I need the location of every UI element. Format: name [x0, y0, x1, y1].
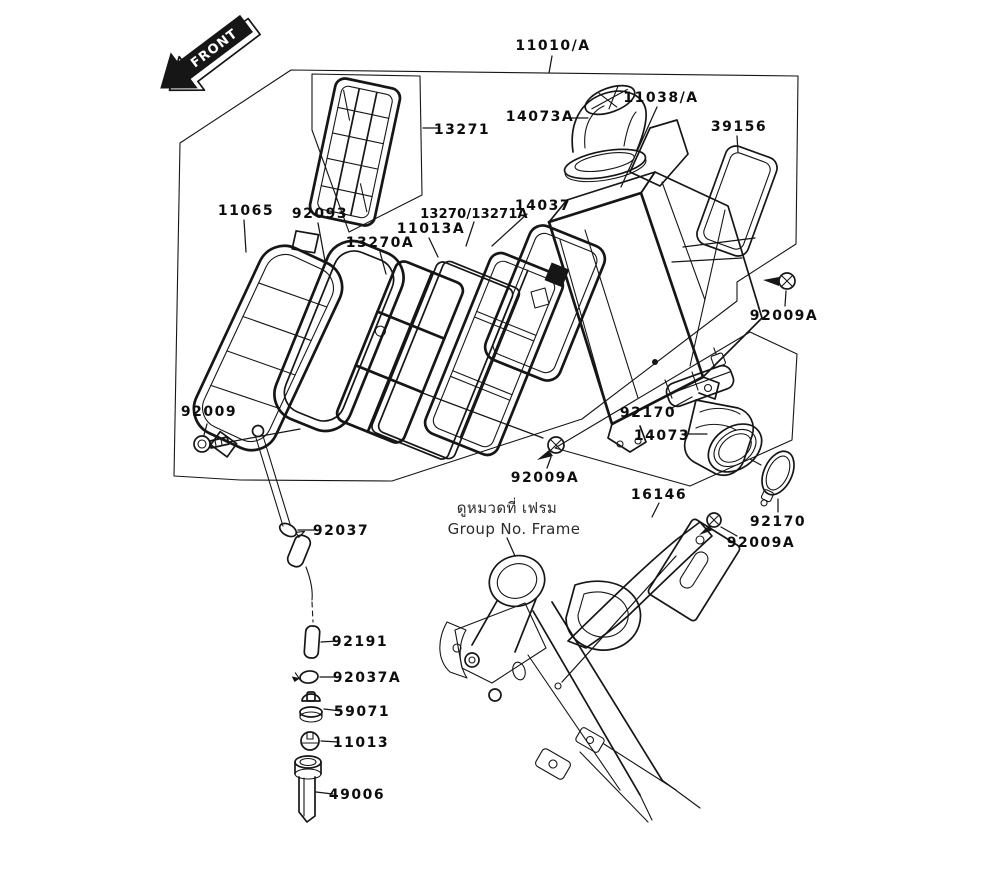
parts-diagram-page: FRONT: [0, 0, 1000, 880]
callout-92009: 92009: [181, 404, 237, 420]
callout-labels: 11010/A 13271 14073A 11038/A 39156 11065…: [181, 38, 818, 803]
frame-note-english: Group No. Frame: [448, 520, 581, 538]
callout-14073A: 14073A: [506, 109, 575, 125]
callout-14037: 14037: [515, 198, 571, 214]
callout-92009A-top: 92009A: [750, 308, 819, 324]
hose-segment: [286, 533, 313, 569]
part-49006-boot: [295, 756, 321, 822]
part-13270A-plate: [334, 259, 465, 445]
part-92009A-screw-center: [420, 392, 564, 460]
frame-reference-drawing: [440, 548, 700, 822]
drain-hose-chain: [256, 436, 322, 822]
callout-92037A: 92037A: [333, 670, 402, 686]
part-11038A-case: [531, 120, 762, 452]
part-11013-holder: [301, 732, 319, 750]
callout-11013A: 11013A: [397, 221, 466, 237]
part-13270-13271A-plate: [422, 249, 567, 458]
callout-13271: 13271: [434, 122, 490, 138]
parts-diagram-svg: FRONT: [0, 0, 1000, 880]
callout-11013: 11013: [333, 735, 389, 751]
callout-39156: 39156: [711, 119, 767, 135]
callout-92191: 92191: [332, 634, 388, 650]
callout-92093: 92093: [292, 206, 348, 222]
callout-49006: 49006: [329, 787, 385, 803]
callout-92170-upper: 92170: [620, 405, 676, 421]
cover-drain-spout: [253, 426, 264, 437]
callout-92009A-center: 92009A: [511, 470, 580, 486]
callout-13270-13271A: 13270/13271A: [420, 207, 528, 222]
part-92191-tube: [304, 626, 320, 659]
part-92009A-screw-top: [763, 273, 795, 289]
callout-11038A: 11038/A: [623, 90, 698, 106]
part-92037A-clamp: [291, 670, 318, 686]
callout-leader-lines: [204, 56, 786, 794]
callout-92170-lower: 92170: [750, 514, 806, 530]
callout-92037: 92037: [313, 523, 369, 539]
frame-note-thai: ดูหมวดที่ เฟรม: [457, 497, 557, 517]
callout-14073: 14073: [634, 428, 690, 444]
part-39156-pad: [694, 143, 780, 259]
part-16146-bracket: [555, 518, 741, 689]
callout-11010A: 11010/A: [515, 38, 590, 54]
callout-16146: 16146: [631, 487, 687, 503]
front-direction-arrow: FRONT: [149, 4, 267, 110]
part-59071-joint: [300, 692, 322, 722]
frame-reference-note: ดูหมวดที่ เฟรม Group No. Frame: [448, 497, 581, 538]
part-13271-element: [308, 77, 402, 228]
callout-92009A-bottom: 92009A: [727, 535, 796, 551]
callout-13270A: 13270A: [346, 235, 415, 251]
callout-11065: 11065: [218, 203, 274, 219]
callout-59071: 59071: [334, 704, 390, 720]
part-11065-cover: [179, 217, 360, 472]
